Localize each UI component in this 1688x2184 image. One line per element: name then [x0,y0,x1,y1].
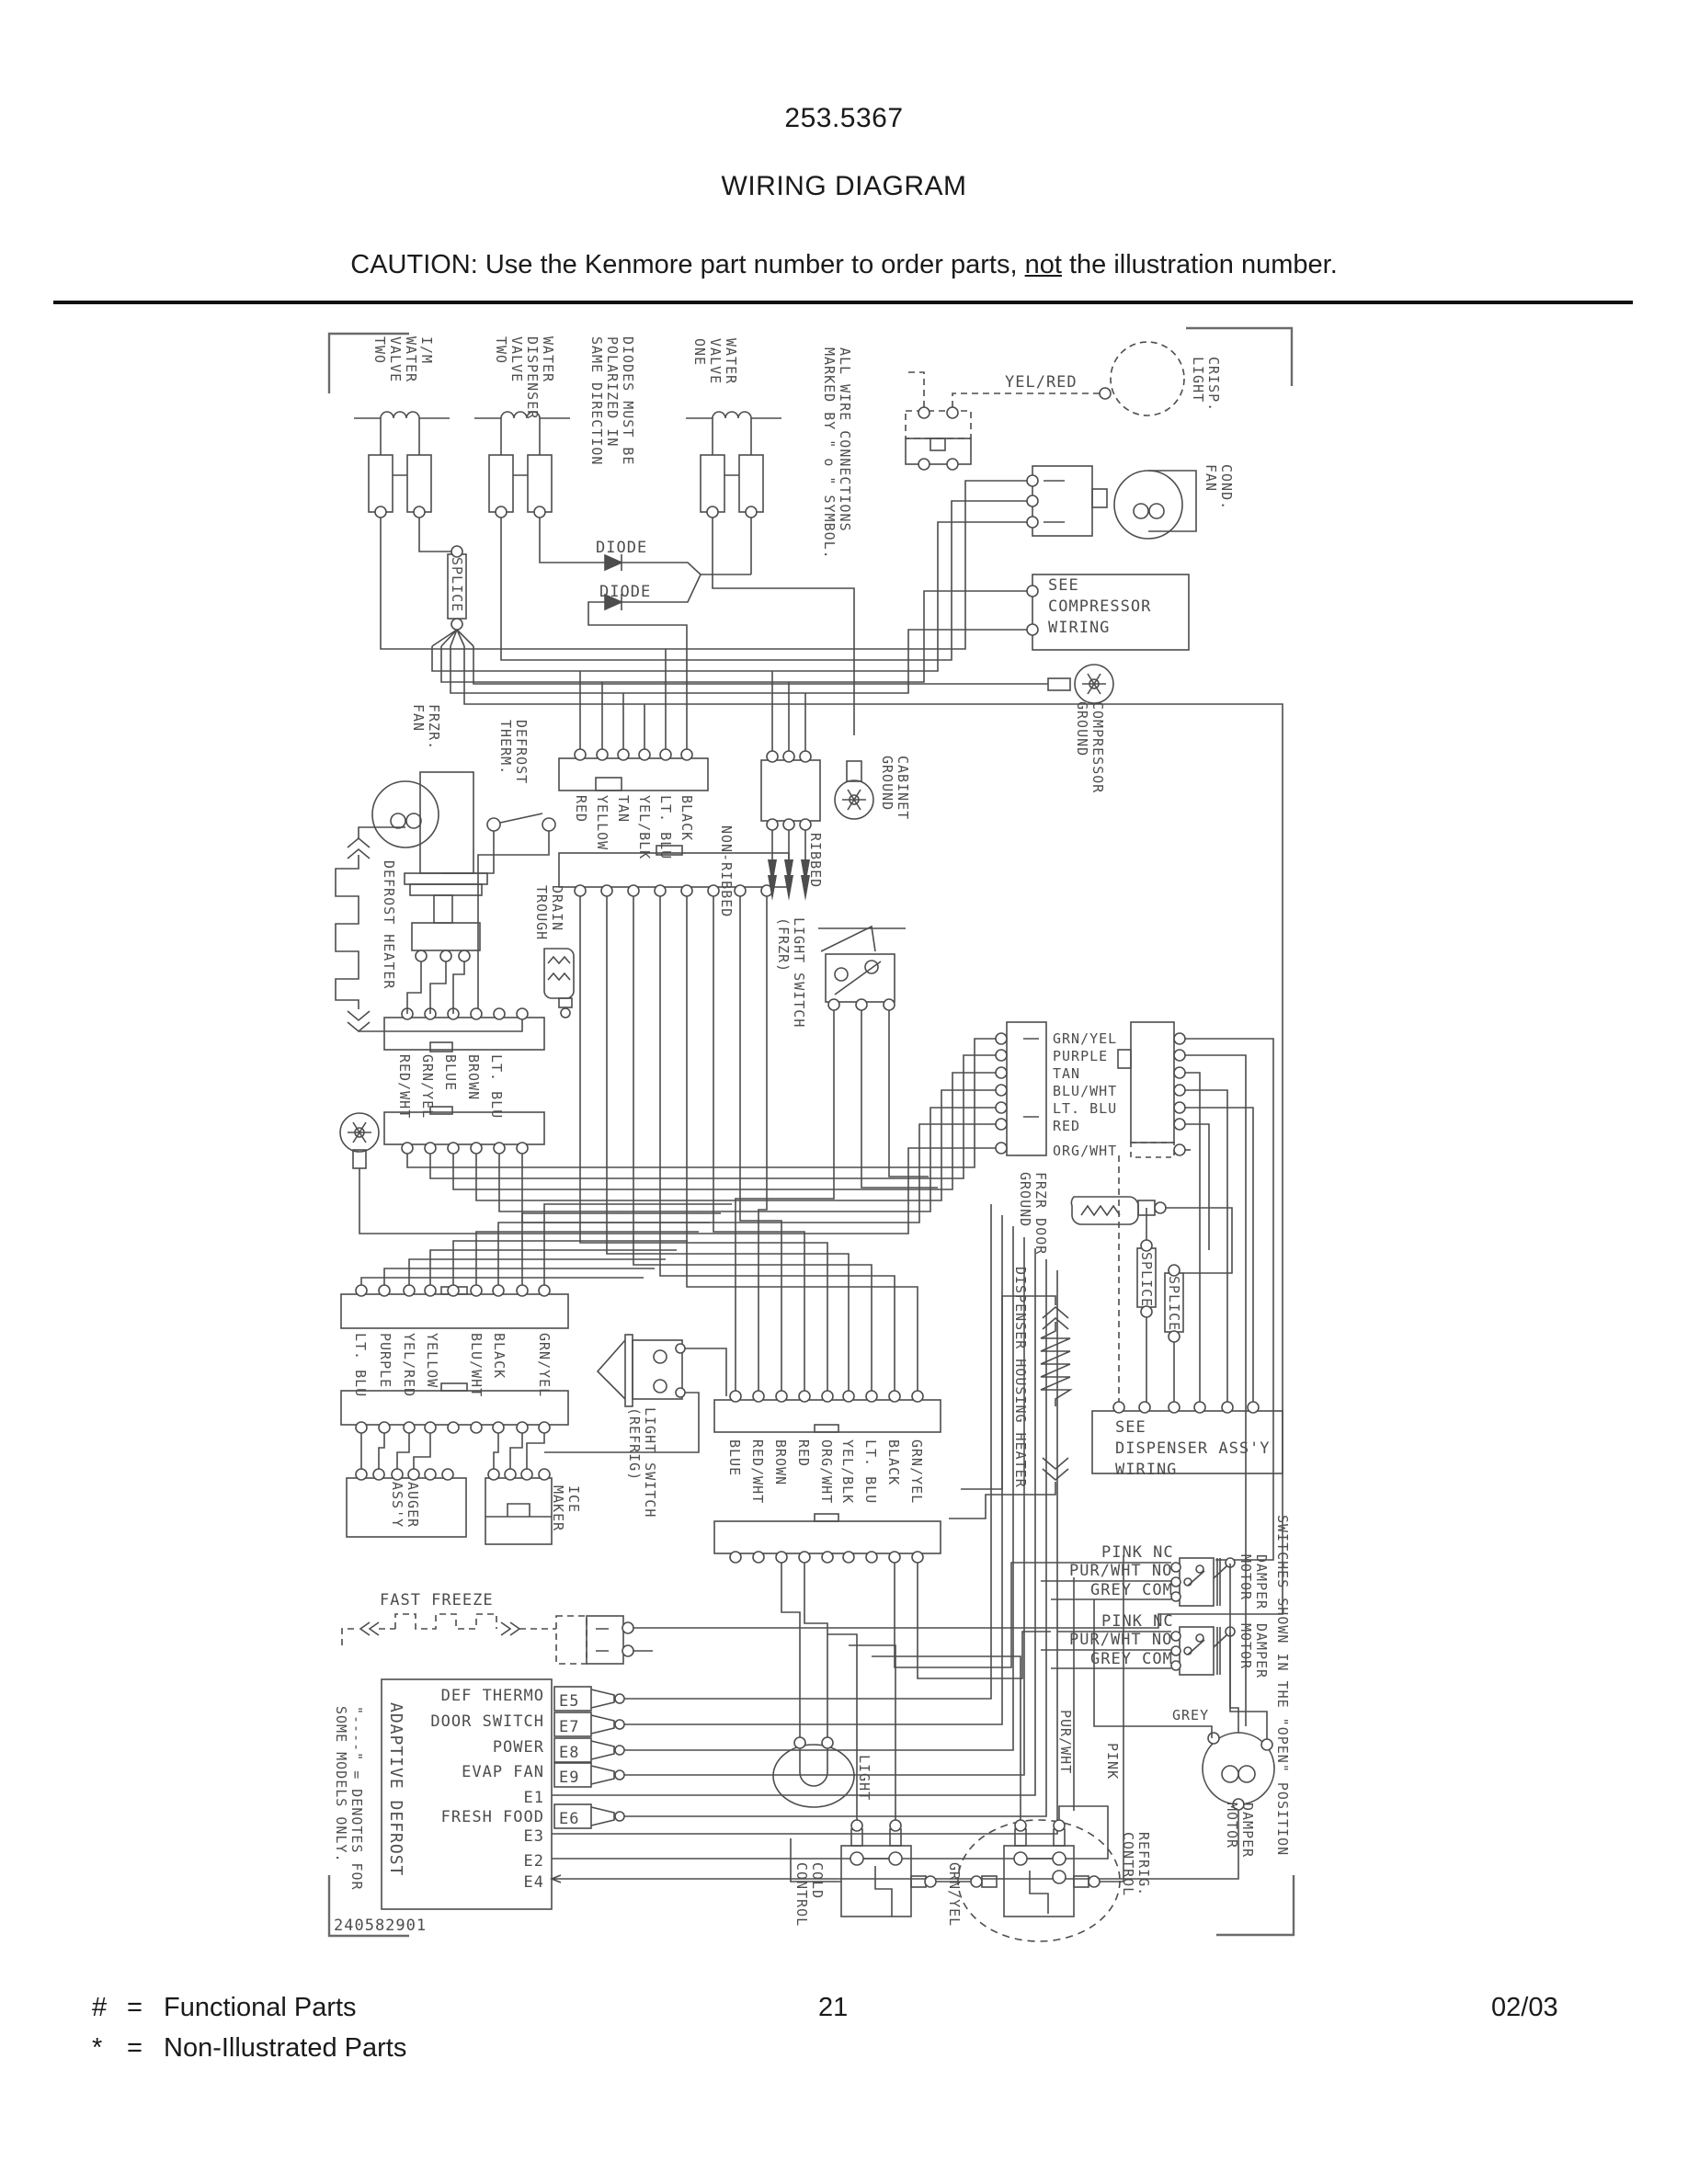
label-damper-motor-1: DAMPER MOTOR [1237,1554,1269,1610]
label-c-red: RED [795,1439,811,1467]
label-ll-blu-wht: BLU/WHT [468,1333,484,1397]
label-ice-maker: ICE MAKER [550,1485,581,1531]
label-frzr-door-ground: FRZR DOOR GROUND [1017,1172,1048,1255]
label-wire-yel-blk: YEL/BLK [636,795,652,859]
label-switches-note: SWITCHES SHOWN IN THE "OPEN" POSITION [1274,1515,1290,1856]
label-wire-note: ALL WIRE CONNECTIONS MARKED BY " o " SYM… [821,347,852,560]
water-dispenser-valve-two [474,412,570,518]
label-c-red-wht: RED/WHT [749,1439,765,1504]
label-r-grn-yel: GRN/YEL [1053,1031,1117,1047]
label-wire-yellow: YELLOW [594,795,610,850]
label-grey-com-2: GREY COM [1090,1649,1173,1670]
label-auger-assy: AUGER ASS'Y [389,1482,420,1528]
label-grey-com-1: GREY COM [1090,1580,1173,1601]
label-ribbed: RIBBED [807,833,823,888]
label-refrig-control: REFRIG. CONTROL [1120,1832,1151,1896]
crisp-light-pin [1100,388,1111,399]
label-pur-wht-no-1: PUR/WHT NO [1069,1561,1172,1582]
label-diode-1: DIODE [596,538,647,559]
label-r-red: RED [1053,1119,1080,1134]
board-row-door-switch: DOOR SWITCH [405,1712,544,1733]
board-row-power: POWER [405,1737,544,1758]
board-row-fresh-food: FRESH FOOD [405,1807,544,1828]
label-r-blu-wht: BLU/WHT [1053,1084,1117,1099]
terminal-e8: E8 [559,1743,579,1764]
label-frzr-fan: FRZR. FAN [410,704,441,750]
terminal-e6: E6 [559,1809,579,1830]
cond-fan [1027,466,1196,539]
label-light-switch-refrig: LIGHT SWITCH (REFRIG) [626,1407,657,1518]
label-wire-black: BLACK [679,795,694,841]
im-water-valve-two [354,412,450,518]
label-defrost-therm: DEFROST THERM. [497,720,529,784]
defrost-timer-connector [906,372,971,470]
label-cold-control: COLD CONTROL [793,1862,825,1927]
light-switch-frzr [736,927,938,1396]
label-wire-grn-yel: GRN/YEL [419,1054,435,1119]
label-ll-grn-yel: GRN/YEL [536,1333,552,1397]
label-c-org-wht: ORG/WHT [818,1439,834,1504]
label-pur-wht-no-2: PUR/WHT NO [1069,1630,1172,1651]
label-splice-r2: SPLICE [1166,1276,1181,1331]
label-im-water-valve: I/M WATER VALVE TWO [371,336,434,382]
legend-non-illustrated: *=Non-Illustrated Parts [92,2033,406,2064]
label-wire-brown: BROWN [465,1054,481,1100]
label-diodes-note: DIODES MUST BE POLARIZED IN SAME DIRECTI… [588,336,635,465]
label-r-purple: PURPLE [1053,1049,1108,1064]
label-c-yel-blk: YEL/BLK [839,1439,855,1504]
label-r-tan: TAN [1053,1066,1080,1082]
page-number: 21 [818,1993,848,2023]
cabinet-ground-lug [835,761,873,819]
label-see-compressor: SEE COMPRESSOR WIRING [1048,575,1151,639]
label-dispenser-valve: WATER DISPENSER VALVE TWO [493,336,555,419]
terminal-e7: E7 [559,1717,579,1738]
drain-trough [544,949,574,1018]
water-valve-one [686,412,781,518]
label-non-ribbed: NON-RIBBED [718,825,734,917]
terminal-e9: E9 [559,1768,579,1789]
label-wire-red: RED [573,795,588,823]
board-row-e3: E3 [405,1826,544,1848]
label-drain-trough: DRAIN TROUGH [533,885,565,940]
label-wire-lt-blu-2: LT. BLU [488,1054,504,1119]
label-water-valve-one: WATER VALVE ONE [691,338,738,384]
dispenser-housing-heater [949,1296,1070,1519]
label-c-grn-yel: GRN/YEL [908,1439,924,1504]
label-ll-yel-red: YEL/RED [401,1333,416,1397]
label-yel-red: YEL/RED [1005,372,1078,393]
label-defrost-heater: DEFROST HEATER [381,860,396,989]
label-fast-freeze: FAST FREEZE [380,1590,494,1611]
board-row-def-thermo: DEF THERMO [405,1686,544,1707]
label-r-lt-blu: LT. BLU [1053,1101,1117,1117]
board-row-evap-fan: EVAP FAN [405,1762,544,1783]
label-c-black: BLACK [885,1439,901,1485]
label-cabinet-ground: CABINET GROUND [879,756,910,820]
label-ll-black: BLACK [491,1333,507,1379]
label-ll-yellow: YELLOW [424,1333,439,1388]
label-models-note: "----" = DENOTES FOR SOME MODELS ONLY. [333,1706,364,1891]
label-wire-tan: TAN [615,795,631,823]
refrig-light [773,1563,854,1807]
label-dispenser-heater: DISPENSER HOUSING HEATER [1012,1267,1028,1488]
label-c-lt-blu: LT. BLU [862,1439,878,1504]
label-adaptive-defrost: ADAPTIVE DEFROST [386,1702,405,1876]
label-pur-wht: PUR/WHT [1057,1710,1073,1774]
compressor-ground-lug [1048,665,1113,703]
label-ll-purple: PURPLE [377,1333,393,1388]
label-grey: GREY [1172,1708,1209,1723]
legend-functional: #=Functional Parts [92,1993,357,2023]
lower-left-connector [341,1285,568,1433]
label-damper-motor-2: DAMPER MOTOR [1237,1623,1269,1678]
label-wire-blue: BLUE [442,1054,458,1091]
label-diode-2: DIODE [599,582,651,603]
fast-freeze [342,1614,1180,1664]
label-r-org-wht: ORG/WHT [1053,1143,1117,1159]
label-light: LIGHT [856,1755,872,1801]
ice-maker [485,1433,552,1544]
label-compressor-ground: COMPRESSOR GROUND [1074,701,1105,793]
label-wire-lt-blu: LT. BLU [657,795,673,859]
label-damper-motor-3: DAMPER MOTOR [1224,1803,1255,1858]
label-crisp-light: CRISP. LIGHT [1190,357,1221,412]
manual-page: 253.5367 WIRING DIAGRAM CAUTION: Use the… [0,0,1688,2184]
board-number: 240582901 [334,1916,427,1937]
label-cond-fan: COND. FAN [1203,464,1234,510]
label-c-blue: BLUE [726,1439,742,1476]
terminal-e5: E5 [559,1691,579,1712]
label-grn-yel-bottom: GRN/YEL [946,1862,962,1927]
wiring-diagram-graphic [0,0,1688,2184]
mid-ground-lug [340,1113,379,1168]
label-pink: PINK [1104,1743,1120,1780]
label-see-dispenser: SEE DISPENSER ASS'Y WIRING [1115,1417,1271,1481]
board-row-e4: E4 [405,1872,544,1894]
board-row-e2: E2 [405,1851,544,1872]
label-wire-red-wht: RED/WHT [396,1054,412,1119]
label-ll-lt-blu: LT. BLU [352,1333,368,1397]
label-c-brown: BROWN [772,1439,788,1485]
footer-date: 02/03 [1491,1993,1558,2023]
label-splice-top: SPLICE [449,557,464,612]
label-splice-r1: SPLICE [1138,1252,1154,1307]
board-row-e1: E1 [405,1788,544,1809]
label-light-switch-frzr: LIGHT SWITCH (FRZR) [775,917,806,1028]
